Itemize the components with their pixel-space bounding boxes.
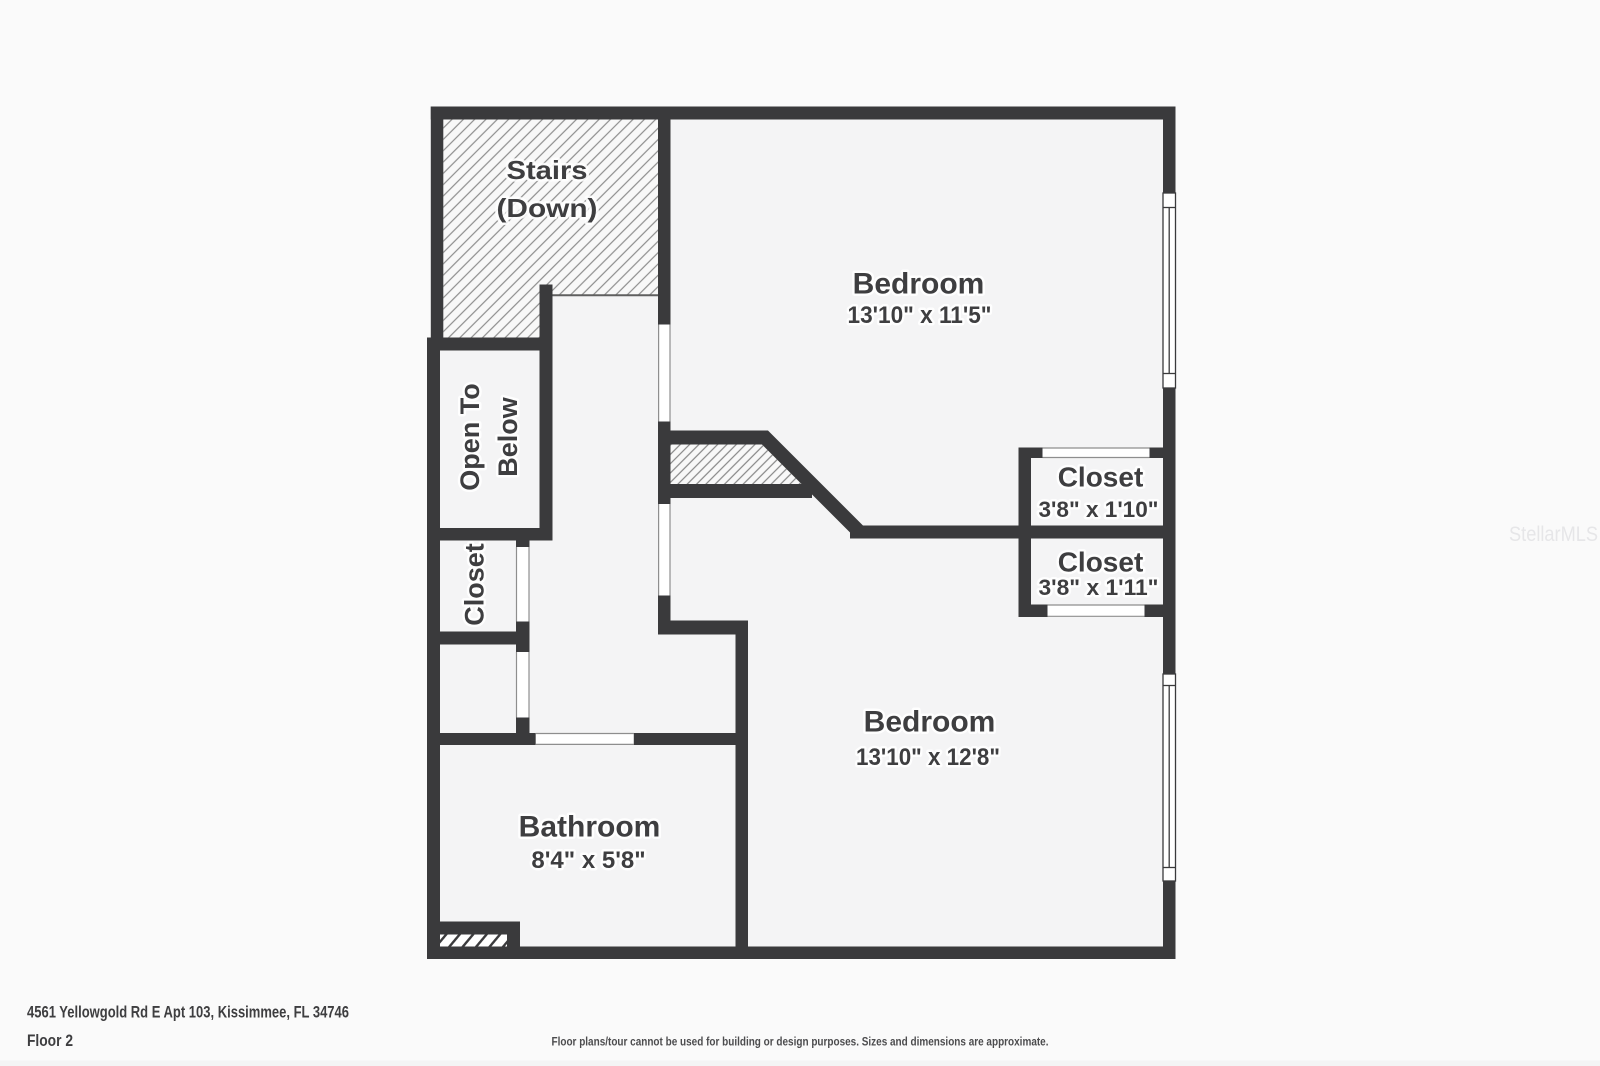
svg-text:13'10" x 11'5": 13'10" x 11'5" [848,302,992,329]
svg-text:Closet: Closet [1058,462,1144,493]
svg-text:Floor 2: Floor 2 [27,1032,73,1050]
svg-text:Bathroom: Bathroom [519,811,661,844]
svg-text:Floor plans/tour cannot be use: Floor plans/tour cannot be used for buil… [552,1037,1049,1049]
svg-text:Closet: Closet [1058,547,1144,578]
svg-text:Bedroom: Bedroom [853,268,985,301]
svg-text:4561 Yellowgold Rd E Apt 103,: 4561 Yellowgold Rd E Apt 103, Kissimmee,… [27,1004,349,1022]
svg-text:(Down): (Down) [497,193,598,223]
svg-text:3'8" x 1'10": 3'8" x 1'10" [1039,497,1159,522]
svg-text:StellarMLS: StellarMLS [1509,523,1598,546]
svg-text:13'10" x 12'8": 13'10" x 12'8" [856,744,1000,771]
svg-text:Bedroom: Bedroom [864,706,996,739]
svg-text:Stairs: Stairs [507,155,588,185]
svg-text:3'8" x 1'11": 3'8" x 1'11" [1039,575,1159,600]
svg-text:Closet: Closet [460,543,490,626]
svg-text:8'4" x 5'8": 8'4" x 5'8" [531,847,645,874]
